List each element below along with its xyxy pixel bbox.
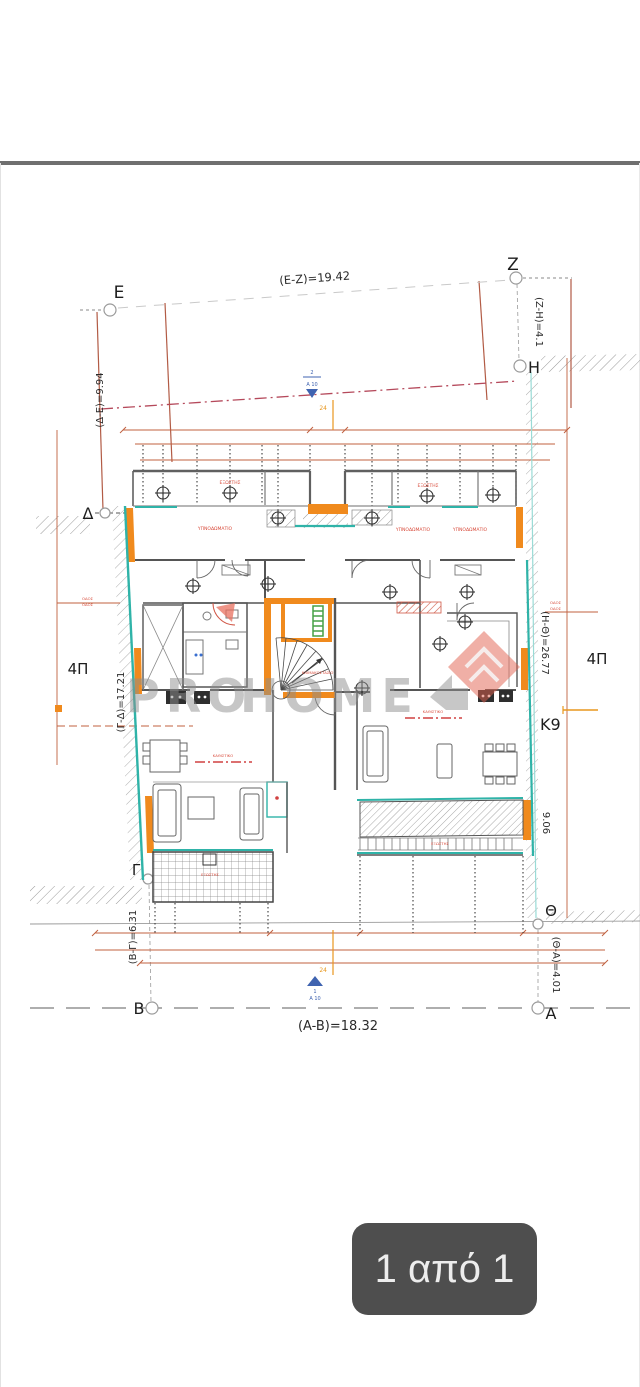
dim-ez: (E-Z)=19.42 — [279, 269, 351, 288]
dim-orange-bottom: 24 — [319, 967, 327, 974]
section-top-triangle-icon — [306, 389, 318, 398]
dim-orange-top: 24 — [319, 405, 327, 412]
hatch-band-gamma — [30, 886, 142, 904]
room-label-bedroom-2: ΥΠΝΟΔΩΜΑΤΙΟ — [395, 527, 431, 533]
section-top-ref: A 10 — [306, 382, 317, 388]
point-label-z: Z — [507, 255, 519, 275]
watermark: PRO HOME — [126, 631, 520, 723]
section-marker-bottom: 1 A 10 — [307, 976, 323, 1002]
point-label-a: A — [546, 1004, 557, 1023]
street-label-right-1: ΟΔΟΣ — [550, 600, 562, 605]
dim-zh: (Z-H)=4.1 — [533, 297, 544, 347]
dim-right-height: 9.06 — [540, 812, 551, 834]
dim-de: (Δ-Ε)=9.94 — [95, 372, 106, 427]
point-label-e: E — [114, 283, 125, 303]
hatch-band-h — [541, 354, 640, 372]
section-marker-top: 2 A 10 — [303, 370, 321, 398]
dim-hth: (H-Θ)=26.77 — [539, 611, 550, 675]
red-hatch-niche — [397, 602, 441, 613]
floor-label-left: 4Π — [68, 660, 89, 678]
hatch-band-theta — [546, 910, 640, 924]
section-bottom-ref: A 10 — [309, 996, 320, 1002]
room-label-living-1: ΚΑΘΙΣΤΙΚΟ — [213, 753, 234, 758]
watermark-text-pro: PRO — [126, 669, 252, 723]
floor-plan-drawing: 2 A 10 1 A 10 PRO HOME E Z H Δ Γ B A — [0, 0, 640, 1387]
floor-label-right: 4Π — [587, 650, 608, 668]
section-bottom-number: 1 — [313, 989, 316, 995]
room-label-balcony-3: ΕΞΩΣΤΗΣ — [201, 872, 219, 877]
screenshot-stage: 2 A 10 1 A 10 PRO HOME E Z H Δ Γ B A — [0, 0, 640, 1387]
dim-tha: (Θ-Α)=4.01 — [550, 937, 561, 994]
street-label-left-1: ΟΔΟΣ — [82, 596, 94, 601]
grid-label-k9: K9 — [540, 715, 561, 734]
section-bottom-triangle-icon — [307, 976, 323, 986]
section-top-number: 2 — [310, 370, 313, 376]
point-label-h: H — [528, 358, 540, 377]
room-label-living-2: ΚΑΘΙΣΤΙΚΟ — [423, 709, 444, 714]
street-label-left-2: ΟΔΟΣ — [82, 602, 94, 607]
room-label-balcony-1: ΕΞΩΣΤΗΣ — [220, 480, 241, 486]
dim-ab: (A-B)=18.32 — [298, 1019, 378, 1034]
room-label-bedroom-1: ΥΠΝΟΔΩΜΑΤΙΟ — [197, 526, 233, 532]
room-label-balcony-4: ΕΞΩΣΤΗΣ — [431, 841, 449, 846]
point-label-b: B — [134, 999, 145, 1018]
point-label-delta: Δ — [83, 504, 94, 523]
room-label-stair: ΚΛΙΜΑΚΟΣΤΑΣΙΟ — [302, 670, 333, 675]
page-indicator-label: 1 από 1 — [375, 1247, 515, 1292]
room-label-bedroom-3: ΥΠΝΟΔΩΜΑΤΙΟ — [452, 527, 488, 533]
street-label-right-2: ΟΔΟΣ — [550, 606, 562, 611]
point-label-gamma: Γ — [132, 861, 141, 879]
dim-bg: (Β-Γ)=6.31 — [128, 910, 139, 965]
point-label-theta: Θ — [545, 902, 557, 920]
fire-door-wedge — [216, 603, 235, 622]
page-indicator: 1 από 1 — [352, 1223, 537, 1315]
room-label-balcony-2: ΕΞΩΣΤΗΣ — [418, 483, 439, 489]
dim-gd: (Γ-Δ)=17.21 — [116, 672, 127, 733]
balcony-right-hatched — [360, 800, 523, 837]
green-ladder — [313, 606, 323, 636]
watermark-text-home: HOME — [240, 669, 419, 723]
